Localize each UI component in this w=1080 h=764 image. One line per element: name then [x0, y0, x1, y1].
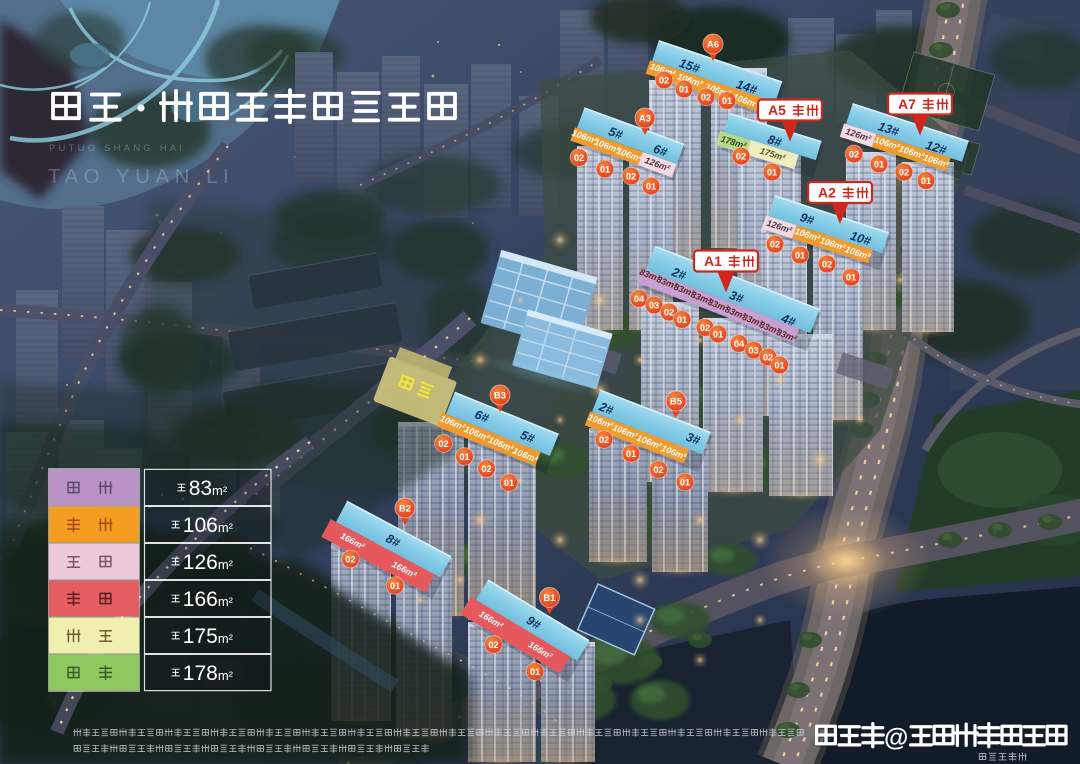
svg-text:01: 01 — [504, 478, 514, 488]
svg-text:02: 02 — [345, 554, 355, 564]
svg-text:01: 01 — [774, 360, 784, 370]
svg-text:01: 01 — [767, 167, 777, 177]
svg-text:02: 02 — [899, 167, 909, 177]
svg-text:B1: B1 — [543, 593, 556, 604]
svg-text:B3: B3 — [494, 390, 506, 401]
svg-text:01: 01 — [795, 250, 805, 260]
svg-text:B5: B5 — [670, 396, 683, 407]
svg-text:04: 04 — [734, 339, 745, 349]
svg-text:B2: B2 — [399, 503, 411, 514]
svg-text:02: 02 — [736, 151, 746, 161]
svg-text:02: 02 — [626, 171, 636, 181]
svg-text:PUTUO SHANG HAI: PUTUO SHANG HAI — [49, 143, 185, 154]
svg-text:02: 02 — [700, 323, 710, 333]
svg-text:A3: A3 — [639, 113, 651, 124]
svg-text:01: 01 — [874, 159, 884, 169]
svg-text:A6: A6 — [707, 39, 719, 50]
svg-text:02: 02 — [659, 75, 669, 85]
svg-text:A7: A7 — [898, 96, 916, 112]
svg-text:02: 02 — [664, 307, 674, 317]
svg-text:02: 02 — [488, 640, 498, 650]
svg-text:01: 01 — [679, 84, 689, 94]
svg-text:01: 01 — [713, 329, 723, 339]
svg-text:TAO YUAN LI: TAO YUAN LI — [48, 165, 234, 188]
svg-text:01: 01 — [600, 164, 610, 174]
svg-text:A1: A1 — [704, 253, 722, 269]
svg-text:01: 01 — [680, 477, 690, 487]
svg-text:03: 03 — [649, 300, 659, 310]
svg-text:01: 01 — [677, 315, 687, 325]
svg-text:02: 02 — [849, 149, 859, 159]
svg-text:A2: A2 — [818, 185, 836, 201]
svg-text:02: 02 — [438, 439, 448, 449]
svg-text:02: 02 — [574, 153, 584, 163]
svg-text:01: 01 — [530, 667, 540, 677]
svg-text:02: 02 — [770, 239, 780, 249]
svg-text:02: 02 — [822, 259, 832, 269]
svg-text:01: 01 — [921, 176, 931, 186]
svg-text:01: 01 — [846, 272, 856, 282]
svg-text:02: 02 — [481, 464, 491, 474]
svg-text:01: 01 — [626, 449, 636, 459]
svg-text:02: 02 — [653, 465, 663, 475]
svg-text:03: 03 — [748, 345, 758, 355]
svg-text:01: 01 — [390, 581, 400, 591]
svg-text:02: 02 — [599, 435, 609, 445]
svg-text:A5: A5 — [768, 102, 786, 118]
svg-text:01: 01 — [459, 452, 469, 462]
svg-text:01: 01 — [722, 96, 732, 106]
svg-text:@: @ — [884, 724, 908, 752]
svg-text:02: 02 — [701, 92, 711, 102]
svg-text:01: 01 — [646, 181, 656, 191]
svg-text:04: 04 — [634, 294, 645, 304]
